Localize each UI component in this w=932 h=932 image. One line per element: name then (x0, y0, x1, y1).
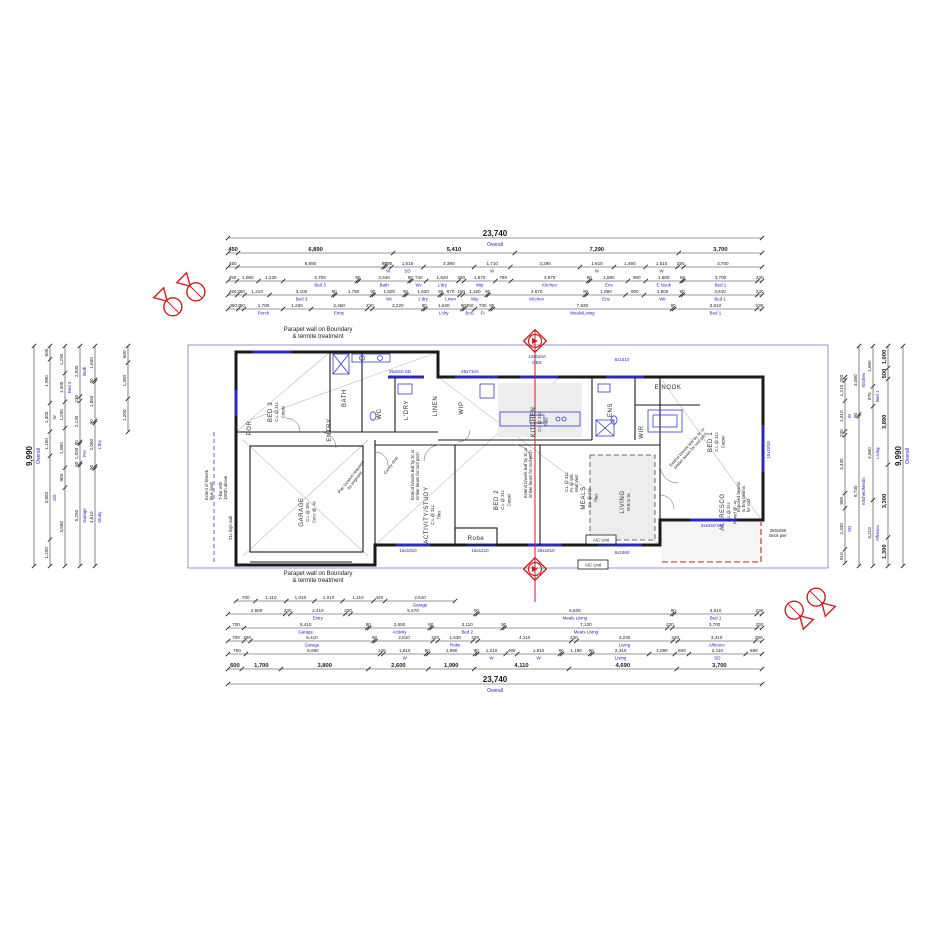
svg-text:1,530: 1,530 (449, 635, 461, 640)
room-label-living: LIVINGW.B to 9c (620, 490, 631, 513)
svg-text:Fr: Fr (481, 311, 486, 316)
room-label-wir: WIR (639, 425, 645, 439)
svg-text:4,560: 4,560 (867, 447, 872, 459)
svg-text:3,610: 3,610 (714, 289, 726, 294)
dim-col-right-3: 1,0005003,8903,3001,300 (882, 344, 890, 568)
room-label-wc: WC (377, 408, 383, 419)
svg-text:780: 780 (499, 275, 507, 280)
svg-text:1,190: 1,190 (570, 648, 582, 653)
svg-text:450: 450 (228, 247, 238, 253)
svg-text:1,800: 1,800 (59, 442, 64, 454)
dim-col-right-2: 1,960970Bed 14,560Living3,210Alfresco (867, 344, 880, 568)
svg-text:1,810: 1,810 (399, 648, 411, 653)
svg-text:230: 230 (366, 303, 374, 308)
svg-text:1,490: 1,490 (624, 261, 636, 266)
svg-text:90: 90 (589, 648, 595, 653)
dim-row-bottom-4: 7605,6901401,810W901,990901,210W4901,810… (226, 648, 764, 661)
svg-text:230: 230 (756, 303, 764, 308)
dim-col-left-1: 6001,9901,300W1,1003,800GD1,200 (44, 344, 57, 568)
dim-col-left-5: 6001,3001,200 (122, 344, 130, 434)
svg-text:1,620: 1,620 (437, 275, 449, 280)
svg-text:Meals Living: Meals Living (563, 616, 588, 621)
elevation-markers-top-left (152, 271, 208, 319)
svg-text:1,210: 1,210 (486, 648, 498, 653)
svg-text:Entry: Entry (334, 311, 345, 316)
svg-text:90: 90 (372, 635, 378, 640)
svg-text:700: 700 (232, 622, 240, 627)
svg-text:1,110: 1,110 (352, 595, 364, 600)
svg-text:W: W (489, 656, 494, 661)
svg-text:1,100: 1,100 (44, 438, 49, 450)
dim-col-left-4: 1,600901,850902,060L'dry904,610Study (89, 344, 102, 568)
svg-text:W: W (847, 413, 852, 418)
svg-text:23,740: 23,740 (483, 675, 508, 684)
svg-text:230: 230 (671, 635, 679, 640)
svg-text:2,510: 2,510 (414, 595, 426, 600)
dim-row-bottom-2: 7005,410Garage902,650Activity903,110Bed … (226, 622, 764, 635)
svg-text:290: 290 (677, 261, 685, 266)
svg-text:1,200: 1,200 (122, 409, 127, 421)
svg-text:1,990: 1,990 (44, 375, 49, 387)
room-label-activity-study: ACTIVITY/STUDYC.L @ 31cTiles (424, 486, 441, 543)
svg-text:1,700: 1,700 (254, 663, 269, 669)
svg-text:L'dry: L'dry (439, 311, 449, 316)
svg-text:490: 490 (508, 648, 516, 653)
window-label: 13x610A (528, 354, 546, 359)
svg-text:970: 970 (867, 392, 872, 400)
svg-text:1,210: 1,210 (251, 289, 263, 294)
svg-text:A/C Unit: A/C Unit (585, 563, 602, 568)
svg-text:290: 290 (243, 635, 251, 640)
svg-text:9,990: 9,990 (894, 445, 903, 466)
svg-text:Garage: Garage (305, 643, 320, 648)
svg-text:1,230: 1,230 (265, 275, 277, 280)
svg-text:3,890: 3,890 (882, 415, 888, 430)
svg-text:Kitchen: Kitchen (542, 283, 557, 288)
svg-text:230: 230 (431, 635, 439, 640)
svg-text:1,080: 1,080 (242, 275, 254, 280)
svg-text:2,430: 2,430 (839, 523, 844, 535)
svg-text:90: 90 (671, 608, 677, 613)
svg-text:90: 90 (89, 378, 94, 384)
svg-text:1,620: 1,620 (417, 289, 429, 294)
svg-text:1,610: 1,610 (591, 261, 603, 266)
dim-row-bottom-1: 2,5002302,410Entry2305,470908,530Meals L… (226, 608, 764, 621)
svg-text:1,090: 1,090 (656, 648, 668, 653)
svg-text:2,130: 2,130 (74, 415, 79, 427)
svg-text:90: 90 (474, 648, 480, 653)
svg-text:5,410: 5,410 (447, 247, 462, 253)
svg-text:4,670: 4,670 (531, 289, 543, 294)
window-label: 25x1810 (537, 548, 555, 553)
svg-text:2,410: 2,410 (615, 648, 627, 653)
svg-text:3,700: 3,700 (709, 622, 721, 627)
svg-text:Wip: Wip (471, 297, 479, 302)
svg-text:450: 450 (229, 303, 237, 308)
svg-text:Bed 1: Bed 1 (714, 297, 726, 302)
svg-text:A/C Unit: A/C Unit (593, 538, 610, 543)
window-label: 16x1210 (471, 548, 489, 553)
svg-text:1,300: 1,300 (122, 374, 127, 386)
svg-text:1,210: 1,210 (839, 384, 844, 396)
svg-text:3,100: 3,100 (296, 289, 308, 294)
svg-text:90: 90 (89, 464, 94, 470)
room-label-bath: BATH (342, 389, 348, 407)
svg-text:7,130: 7,130 (580, 622, 592, 627)
svg-text:2,650: 2,650 (394, 622, 406, 627)
svg-text:L'dry: L'dry (438, 283, 448, 288)
svg-text:760: 760 (233, 648, 241, 653)
svg-text:Bed 3: Bed 3 (296, 297, 308, 302)
svg-text:7,830: 7,830 (577, 303, 589, 308)
svg-text:Bath: Bath (380, 283, 390, 288)
room-label-e-nook: E NOOK (655, 385, 682, 391)
note: Pier location requiredby engineer (337, 459, 370, 497)
svg-text:8,530: 8,530 (569, 608, 581, 613)
svg-text:360: 360 (237, 289, 245, 294)
svg-text:3,700: 3,700 (314, 275, 326, 280)
svg-text:230: 230 (344, 608, 352, 613)
svg-text:3,430: 3,430 (839, 458, 844, 470)
window-label: 15x1810 (766, 441, 771, 459)
svg-text:3,700: 3,700 (713, 247, 728, 253)
svg-text:Bed 1: Bed 1 (710, 616, 722, 621)
svg-text:Bed 2: Bed 2 (461, 630, 473, 635)
svg-text:2,390: 2,390 (443, 261, 455, 266)
svg-text:1,110: 1,110 (265, 595, 277, 600)
svg-text:2,540: 2,540 (378, 275, 390, 280)
dim-col-left-3: 2,630Bath2302,130901,030Por905,250Garage (74, 344, 87, 568)
svg-text:Meals Living: Meals Living (574, 630, 599, 635)
svg-text:Kitchen: Kitchen (861, 372, 866, 387)
svg-text:1,850: 1,850 (89, 395, 94, 407)
svg-text:2,410: 2,410 (312, 608, 324, 613)
svg-text:1,230: 1,230 (291, 303, 303, 308)
svg-text:90: 90 (671, 303, 677, 308)
svg-text:1,300: 1,300 (882, 544, 888, 559)
svg-text:600: 600 (678, 648, 686, 653)
svg-text:Activity: Activity (393, 630, 408, 635)
room-label-linen: LINEN (433, 396, 439, 417)
svg-text:230: 230 (570, 635, 578, 640)
svg-text:1,810: 1,810 (839, 410, 844, 422)
note: Parapet wall on Boundary& termite treatm… (284, 327, 353, 340)
svg-text:W: W (659, 269, 664, 274)
note: Extend b/work leaf by 3c ortimber beam f… (410, 449, 420, 500)
floor-plan-drawing: 23,740Overall4506,8905,4107,2903,7004506… (0, 0, 932, 932)
svg-text:2,410: 2,410 (712, 648, 724, 653)
svg-text:740: 740 (415, 275, 423, 280)
svg-text:90: 90 (425, 648, 431, 653)
svg-text:290: 290 (755, 635, 763, 640)
svg-text:5,410: 5,410 (306, 635, 318, 640)
svg-text:Living: Living (615, 656, 627, 661)
svg-text:W: W (537, 656, 542, 661)
note: 21c high wall (228, 516, 233, 540)
svg-text:1,510: 1,510 (656, 261, 668, 266)
note: T-bar with1900h above (218, 475, 228, 500)
svg-text:900: 900 (839, 496, 844, 504)
dim-row-top-4: 4503601,2103,100Bed 3901,780901,500Wc901… (226, 289, 764, 302)
svg-text:2,450: 2,450 (333, 303, 345, 308)
svg-text:Overall: Overall (487, 242, 503, 248)
svg-text:23,740: 23,740 (483, 229, 508, 238)
dim-col-right-4: 9,990Overall (894, 344, 911, 568)
ac-unit: A/C Unit (578, 560, 608, 569)
svg-text:Porch: Porch (258, 311, 270, 316)
svg-text:90: 90 (89, 419, 94, 425)
window-label: 6x2460 (615, 550, 630, 555)
svg-text:5,250: 5,250 (74, 509, 79, 521)
dim-row-top-2: 4506,89090290W1,515SD2,3901,710W3,2901,6… (226, 261, 764, 274)
svg-text:230: 230 (756, 275, 764, 280)
svg-text:Bed 3: Bed 3 (314, 283, 326, 288)
svg-text:1,600: 1,600 (89, 357, 94, 369)
svg-text:4,230: 4,230 (619, 635, 631, 640)
note: Extent of b/workblue dash (204, 469, 214, 500)
svg-text:Alfresco: Alfresco (875, 525, 880, 541)
svg-text:E Nook: E Nook (657, 283, 672, 288)
window-label: 25x710A (461, 369, 479, 374)
svg-text:690: 690 (750, 648, 758, 653)
svg-text:3,800: 3,800 (317, 663, 332, 669)
svg-text:1,570: 1,570 (474, 275, 486, 280)
svg-text:90: 90 (558, 648, 564, 653)
elevation-markers-bottom-right (781, 584, 836, 630)
svg-text:3,290: 3,290 (539, 261, 551, 266)
svg-text:Bed 3: Bed 3 (67, 381, 72, 393)
svg-text:1,990: 1,990 (444, 663, 459, 669)
svg-text:1,500: 1,500 (383, 289, 395, 294)
room-label-por: POR (247, 421, 253, 436)
svg-text:Bed 1: Bed 1 (710, 311, 722, 316)
svg-text:280: 280 (457, 275, 465, 280)
note: Parapet wall on Boundary& termite treatm… (284, 571, 353, 584)
svg-text:5,470: 5,470 (407, 608, 419, 613)
svg-text:L'dry: L'dry (418, 297, 428, 302)
svg-text:900: 900 (59, 473, 64, 481)
svg-text:810: 810 (839, 552, 844, 560)
note: C.L @ 31cFL @ 60cWall Vent (564, 472, 579, 492)
svg-text:600: 600 (122, 350, 127, 358)
svg-text:Entry: Entry (313, 616, 324, 621)
svg-text:250: 250 (237, 303, 245, 308)
svg-text:290: 290 (385, 261, 393, 266)
svg-text:2,500: 2,500 (251, 608, 263, 613)
svg-text:1,515: 1,515 (402, 261, 414, 266)
svg-text:Wc: Wc (416, 283, 423, 288)
svg-text:GD: GD (52, 494, 57, 501)
svg-text:450: 450 (466, 303, 474, 308)
svg-text:5,410: 5,410 (300, 622, 312, 627)
svg-text:230: 230 (666, 622, 674, 627)
svg-text:230: 230 (756, 622, 764, 627)
svg-text:230: 230 (471, 635, 479, 640)
svg-text:1,010: 1,010 (323, 595, 335, 600)
svg-text:W: W (403, 656, 408, 661)
svg-text:1,620: 1,620 (438, 303, 450, 308)
dim-col-left-2: 1,2301,300Bed 31,2001,8009003,560 (59, 344, 72, 568)
svg-text:90: 90 (366, 622, 372, 627)
svg-text:3,700: 3,700 (712, 663, 727, 669)
svg-text:3,080: 3,080 (853, 374, 858, 386)
svg-text:90: 90 (422, 303, 428, 308)
room-label-wip: WIP (459, 401, 465, 414)
svg-text:Overall: Overall (487, 688, 503, 694)
svg-text:L'dry: L'dry (97, 439, 102, 449)
note: Exposed beamsto Eng beamsfor roof (736, 482, 751, 512)
svg-text:3,610: 3,610 (710, 608, 722, 613)
svg-text:3,870: 3,870 (544, 275, 556, 280)
svg-text:Living: Living (875, 447, 880, 459)
svg-text:3,610: 3,610 (710, 303, 722, 308)
svg-text:Wir: Wir (659, 297, 666, 302)
svg-text:SD: SD (404, 269, 410, 274)
svg-text:Bed 1: Bed 1 (715, 283, 727, 288)
dim-row-bottom-3: 7002905,410Garage902,5102301,530Robe2304… (226, 635, 764, 648)
svg-text:420: 420 (375, 595, 383, 600)
note: Cavity door (382, 455, 399, 475)
svg-text:2,510: 2,510 (398, 635, 410, 640)
svg-text:Garage: Garage (298, 630, 313, 635)
svg-text:4,110: 4,110 (519, 635, 531, 640)
svg-text:700: 700 (232, 635, 240, 640)
svg-text:2,220: 2,220 (392, 303, 404, 308)
svg-text:230: 230 (756, 289, 764, 294)
svg-text:Ens: Ens (605, 283, 613, 288)
svg-text:Kitchen/Meals: Kitchen/Meals (861, 477, 866, 505)
svg-text:900: 900 (633, 275, 641, 280)
window-label: OBS (532, 360, 542, 365)
svg-text:6,890: 6,890 (308, 247, 323, 253)
svg-text:Kitchen: Kitchen (529, 297, 544, 302)
room-label-bed-3: BED 3C.L @ 31cCarpet (268, 402, 285, 422)
svg-text:Garage: Garage (413, 603, 428, 608)
svg-text:W: W (52, 414, 57, 419)
svg-text:3,800: 3,800 (44, 492, 49, 504)
dim-row-top-5: 4502501,700Porch1,2302,450Entry2302,2209… (226, 303, 764, 316)
svg-text:BnS: BnS (465, 311, 473, 316)
svg-text:700: 700 (242, 595, 250, 600)
svg-text:Alfresco: Alfresco (709, 643, 725, 648)
svg-text:W: W (490, 269, 495, 274)
svg-text:Wip: Wip (476, 283, 484, 288)
svg-text:3,210: 3,210 (867, 527, 872, 539)
svg-text:Wc: Wc (386, 297, 393, 302)
svg-text:W: W (595, 269, 600, 274)
svg-text:200: 200 (839, 374, 844, 382)
svg-text:450: 450 (229, 261, 237, 266)
svg-text:1,030: 1,030 (74, 447, 79, 459)
dim-col-right-1: 3,080Kitchen906,730Kitchen/Meals (853, 344, 866, 568)
svg-text:1,300: 1,300 (44, 411, 49, 423)
svg-text:Study: Study (97, 511, 102, 523)
svg-text:870: 870 (447, 289, 455, 294)
dim-row-top-3: 4501,0801,2303,700Bed 3902,540Bath90740W… (226, 275, 764, 288)
svg-text:3,410: 3,410 (711, 635, 723, 640)
svg-text:3,560: 3,560 (59, 521, 64, 533)
svg-text:1,800: 1,800 (657, 289, 669, 294)
note: 260x290Brick pier (769, 528, 787, 538)
window-label: 16x1810 (399, 548, 417, 553)
svg-text:Linen: Linen (445, 297, 456, 302)
svg-text:1,700: 1,700 (258, 303, 270, 308)
note: Extend b/work leaf by 3c ortimber beam f… (523, 447, 533, 498)
svg-text:4,610: 4,610 (89, 511, 94, 523)
room-label-ens: ENS (608, 403, 614, 417)
svg-text:90: 90 (74, 440, 79, 446)
ac-unit: A/C Unit (586, 535, 616, 544)
svg-text:230: 230 (756, 608, 764, 613)
svg-text:2,060: 2,060 (89, 438, 94, 450)
svg-text:1,000: 1,000 (882, 350, 888, 365)
window-label: 6x1510 (615, 357, 630, 362)
room-label-bed-1: BED 1C.L @ 31cCarpet (708, 432, 725, 452)
svg-text:700: 700 (479, 303, 487, 308)
svg-text:SD: SD (714, 656, 720, 661)
dim-row-bottom-6: 23,740Overall (226, 675, 764, 694)
dim-row-bottom-5: 6001,7003,8002,6001,9904,1104,6903,700 (226, 663, 764, 671)
svg-text:3,700: 3,700 (715, 275, 727, 280)
svg-text:Garage: Garage (82, 508, 87, 523)
room-label-robe: Robe (468, 536, 485, 542)
alfresco-fill (662, 522, 761, 562)
svg-text:90: 90 (474, 608, 480, 613)
svg-text:230: 230 (284, 608, 292, 613)
room-label-garage: GARAGEC.L @ 28cConc @ -4c (299, 497, 316, 526)
svg-text:Por: Por (82, 450, 87, 457)
svg-text:90: 90 (428, 622, 434, 627)
svg-text:Overall: Overall (36, 448, 42, 464)
dim-row-bottom-0: 7001,1101,0101,0101,1104202,510Garage (234, 595, 457, 608)
svg-text:1,160: 1,160 (469, 289, 481, 294)
svg-text:Meals/Living: Meals/Living (570, 311, 595, 316)
svg-text:3,700: 3,700 (717, 261, 729, 266)
svg-text:9,990: 9,990 (25, 445, 34, 466)
window-label: 25x610 SD (389, 369, 412, 374)
svg-text:450: 450 (229, 289, 237, 294)
svg-text:90: 90 (501, 622, 507, 627)
svg-text:90: 90 (853, 412, 858, 418)
note: Extend b/work leaf by 3c ortimber beam f… (668, 426, 710, 471)
svg-text:1,890: 1,890 (600, 289, 612, 294)
svg-text:600: 600 (230, 663, 240, 669)
svg-text:230: 230 (839, 429, 844, 437)
svg-text:1,010: 1,010 (295, 595, 307, 600)
svg-text:3,110: 3,110 (462, 622, 474, 627)
svg-text:500: 500 (882, 369, 888, 379)
svg-text:Overall: Overall (905, 448, 911, 464)
dim-col-right-0: 2001,2101,810W2303,4309002,430SD810 (839, 374, 852, 565)
svg-text:1,710: 1,710 (486, 261, 498, 266)
svg-text:1,810: 1,810 (533, 648, 545, 653)
drawing-canvas: 23,740Overall4506,8905,4107,2903,7004506… (0, 0, 932, 932)
dim-row-top-0: 23,740Overall (226, 229, 764, 248)
svg-text:6,890: 6,890 (305, 261, 317, 266)
svg-text:1,960: 1,960 (867, 360, 872, 372)
svg-text:4,690: 4,690 (616, 663, 631, 669)
svg-text:2,600: 2,600 (391, 663, 406, 669)
svg-text:230: 230 (74, 394, 79, 402)
svg-text:90: 90 (74, 461, 79, 467)
svg-text:Bath: Bath (82, 366, 87, 376)
svg-text:1,200: 1,200 (59, 409, 64, 421)
svg-text:5,690: 5,690 (307, 648, 319, 653)
svg-text:600: 600 (44, 348, 49, 356)
svg-text:Living: Living (619, 643, 631, 648)
dim-row-top-1: 4506,8905,4107,2903,700 (226, 247, 764, 255)
window-label: 2x2410 SD (701, 523, 724, 528)
